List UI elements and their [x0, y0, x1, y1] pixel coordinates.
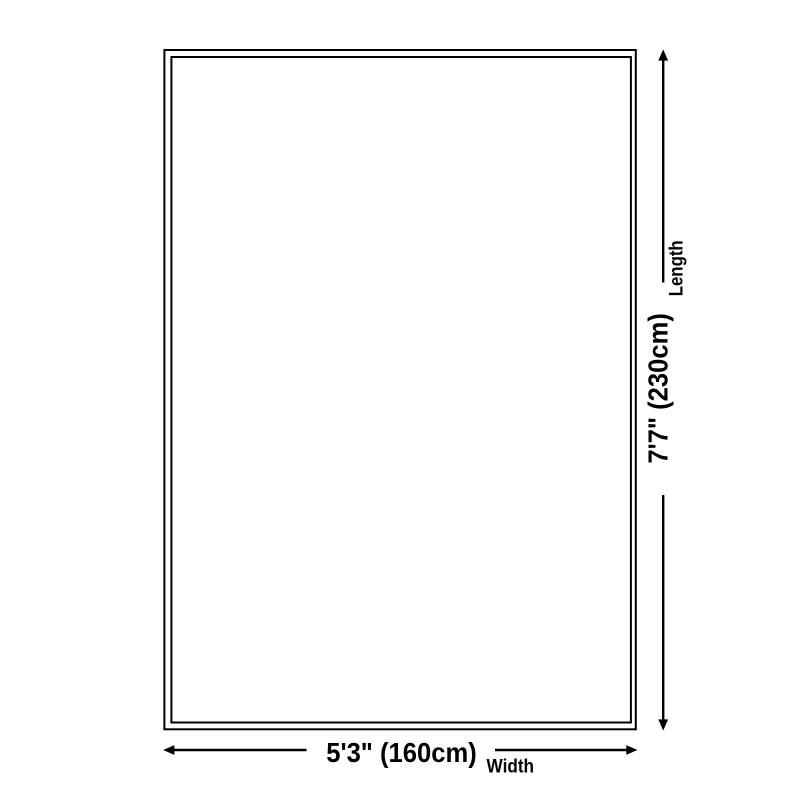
svg-text:Width: Width [487, 757, 535, 778]
svg-text:Length: Length [667, 240, 688, 296]
svg-text:5'3" (160cm): 5'3" (160cm) [326, 737, 477, 768]
svg-text:7'7" (230cm): 7'7" (230cm) [643, 313, 674, 464]
